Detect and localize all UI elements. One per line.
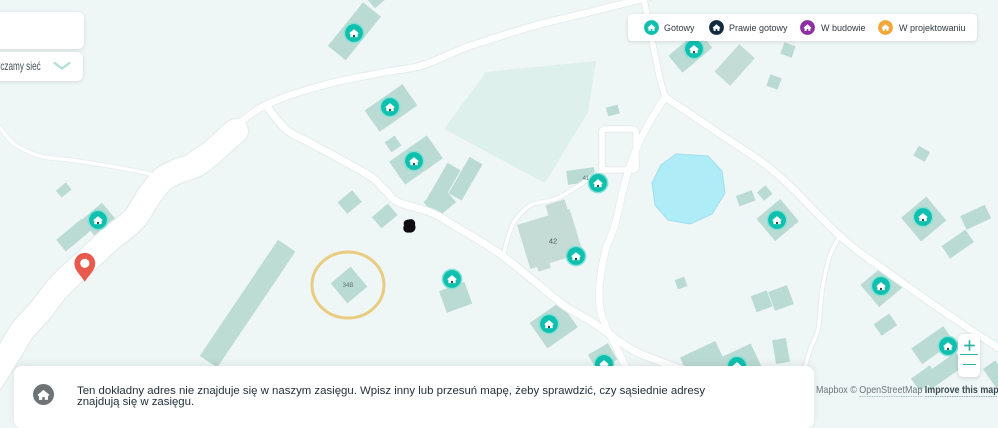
svg-text:42: 42: [549, 237, 557, 246]
svg-text:34B: 34B: [343, 283, 354, 289]
